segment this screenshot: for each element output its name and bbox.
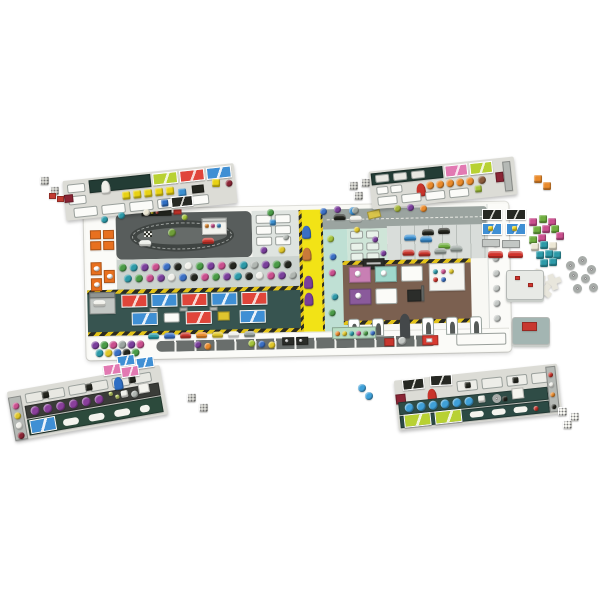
die-token: [187, 393, 196, 402]
cube-piece: [549, 242, 557, 250]
disc-piece: [118, 212, 125, 219]
cube-piece: [534, 175, 542, 183]
disc-piece: [352, 207, 359, 214]
tile-piece: [515, 276, 520, 280]
card-deck: [506, 270, 544, 300]
cube-piece: [539, 215, 547, 223]
disc-piece: [365, 392, 373, 400]
game-table: [0, 0, 600, 600]
die-token: [40, 176, 49, 185]
worker-meeple: [113, 376, 124, 390]
wheel-nut-token: [578, 256, 587, 265]
disc-piece: [407, 204, 414, 211]
stacked-card: [120, 365, 139, 378]
cube-piece: [533, 226, 541, 234]
die-token: [354, 191, 363, 200]
wheel-nut-token: [569, 271, 578, 280]
stacked-card: [102, 363, 121, 376]
die-token: [558, 407, 567, 416]
disc-piece: [358, 384, 366, 392]
wheel-nut-token: [589, 283, 598, 292]
cube-piece: [542, 225, 550, 233]
part-tile: [482, 209, 502, 220]
disc-piece: [101, 216, 108, 223]
disc-piece: [143, 209, 150, 216]
disc-piece: [420, 205, 427, 212]
die-token: [349, 181, 358, 190]
cube-piece: [512, 226, 517, 231]
speed-card: [170, 195, 193, 208]
wheel-nut-token: [566, 261, 575, 270]
car-token: [488, 251, 503, 258]
loose-pieces-layer: [0, 0, 600, 600]
disc-piece: [267, 209, 274, 216]
cube-piece: [488, 226, 493, 231]
die-token: [199, 403, 208, 412]
disc-piece: [394, 205, 401, 212]
cube-piece: [531, 243, 539, 251]
tile-piece: [502, 240, 520, 248]
tile-piece: [528, 283, 533, 287]
die-token: [361, 178, 370, 187]
cube-piece: [549, 258, 557, 266]
cube-piece: [540, 241, 548, 249]
wheel-nut-token: [587, 265, 596, 274]
cube-piece: [543, 182, 551, 190]
cube-piece: [536, 251, 544, 259]
tile-piece: [482, 239, 500, 247]
wheel-nut-token: [581, 274, 590, 283]
car-token: [508, 251, 523, 258]
cube-piece: [556, 232, 564, 240]
die-token: [563, 420, 572, 429]
tile-piece: [57, 196, 64, 202]
tile-piece: [49, 193, 56, 199]
disc-piece: [320, 208, 327, 215]
cube-piece: [212, 179, 220, 187]
wheel-nut-token: [573, 284, 582, 293]
deck-label: [522, 322, 537, 331]
part-tile: [506, 209, 526, 220]
cube-piece: [545, 250, 553, 258]
disc-piece: [334, 206, 341, 213]
cube-piece: [540, 259, 548, 267]
cube-piece: [529, 218, 537, 226]
